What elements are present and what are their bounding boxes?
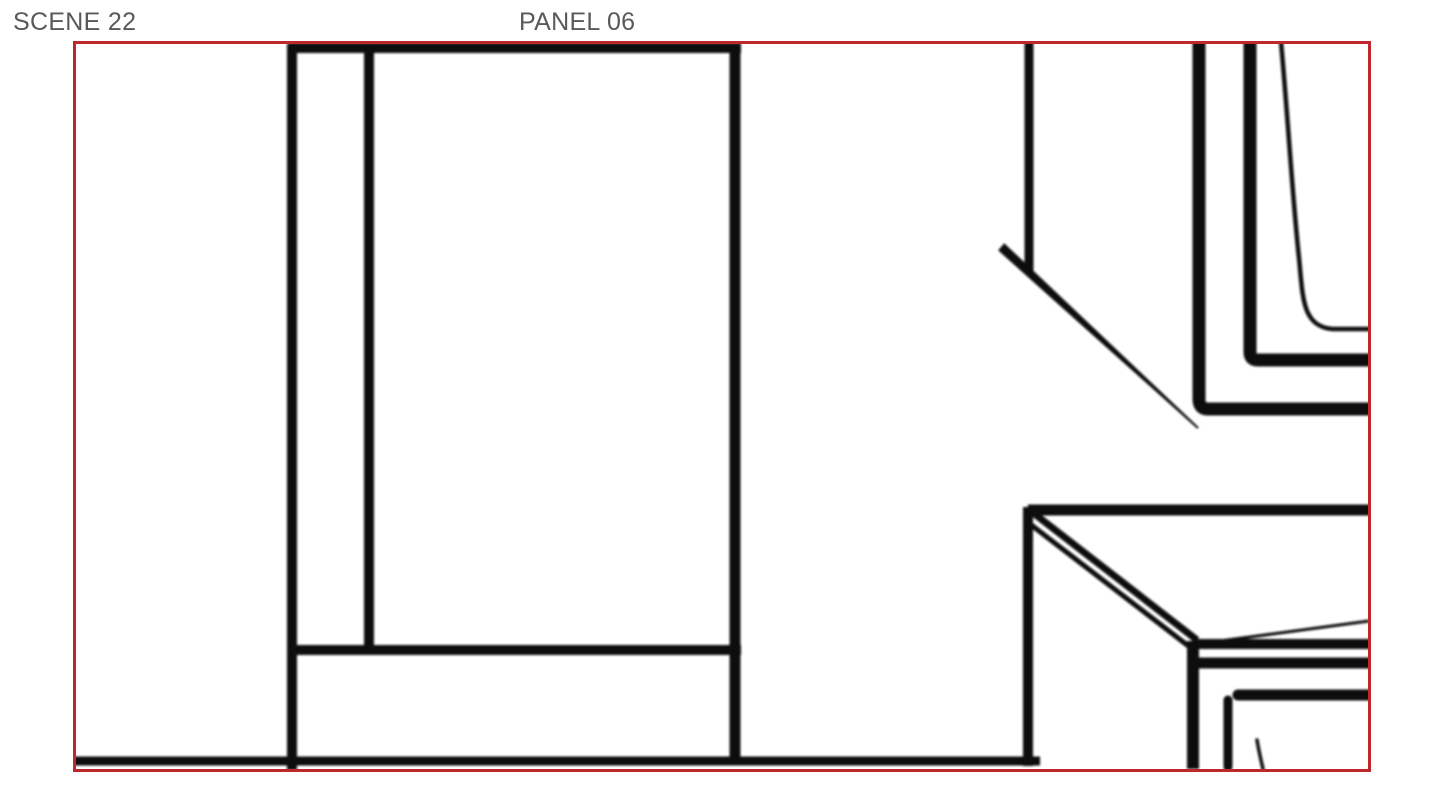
storyboard-page: SCENE 22 PANEL 06 — [0, 0, 1440, 810]
panel-frame — [73, 41, 1371, 772]
